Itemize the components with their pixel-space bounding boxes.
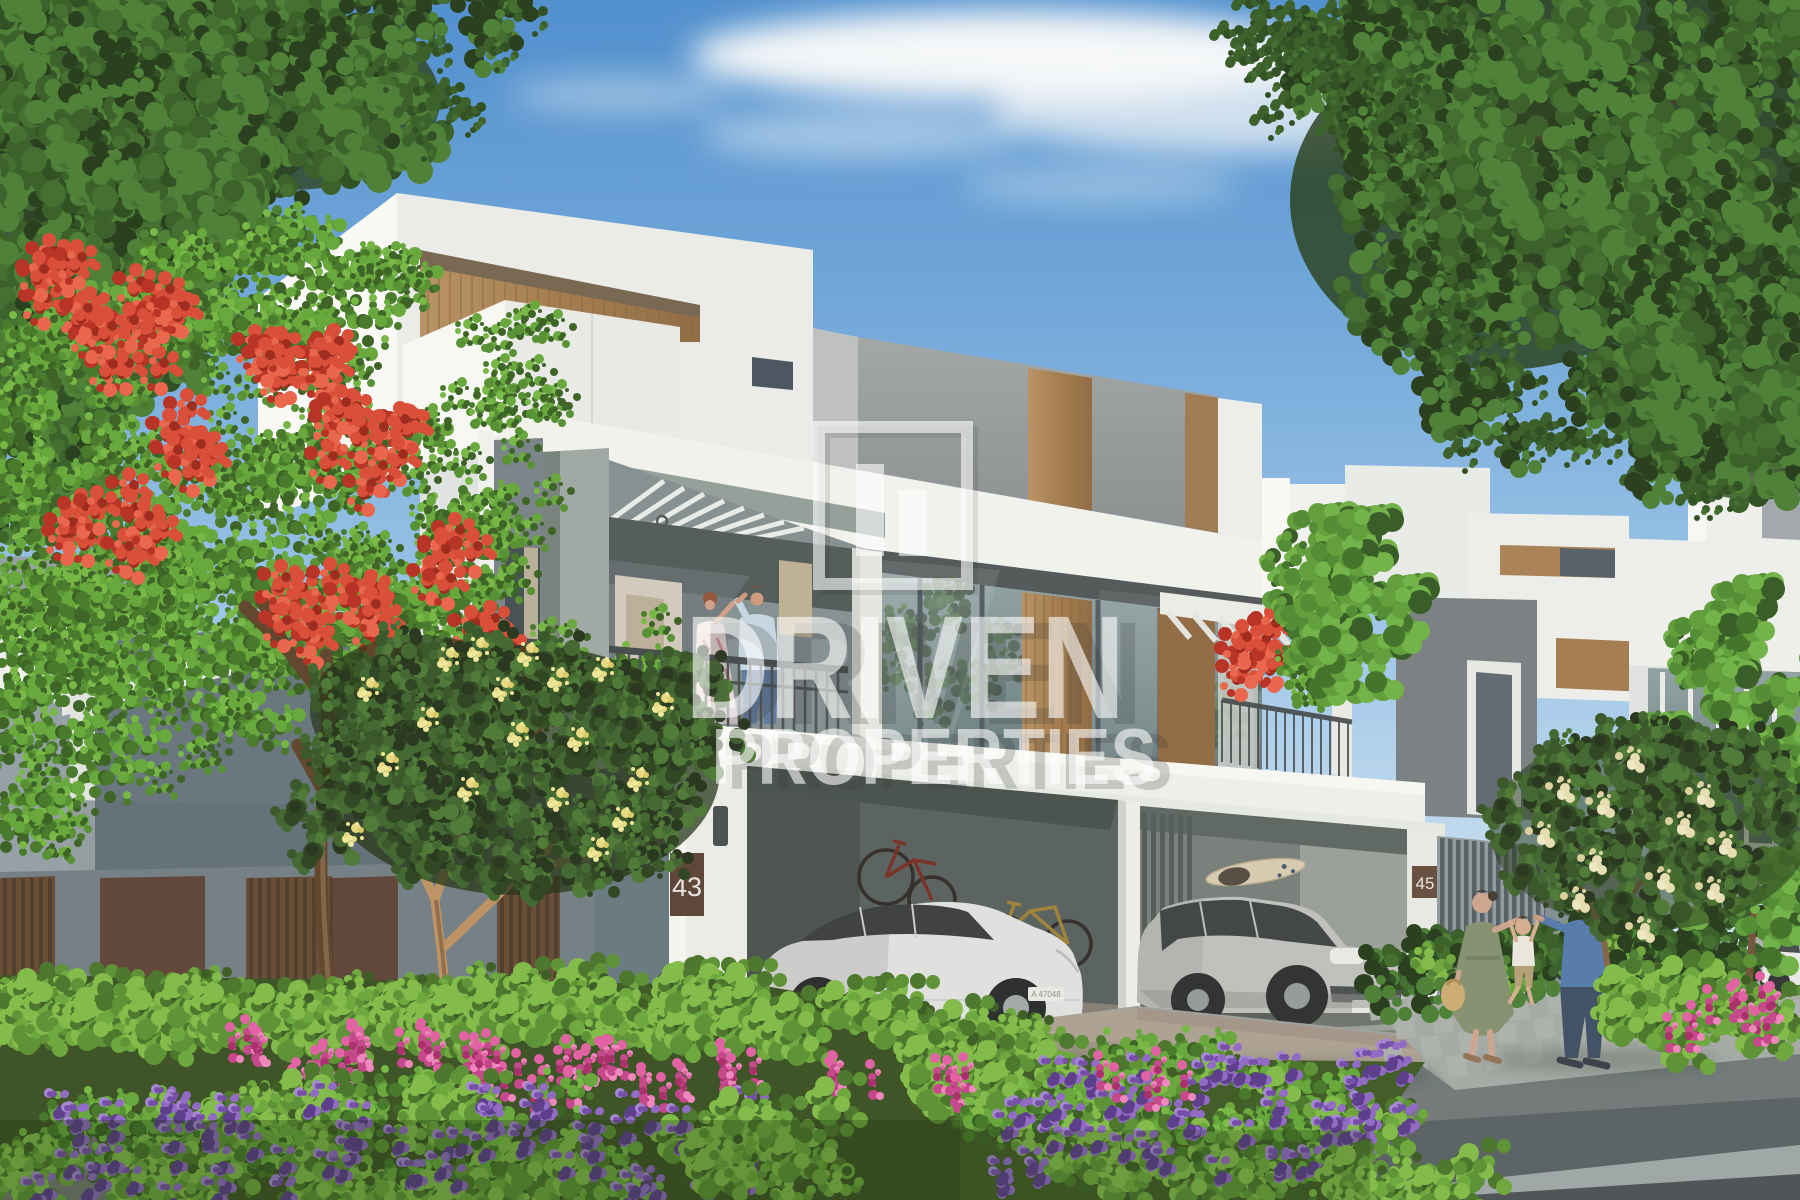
svg-text:PROPERTIES: PROPERTIES — [712, 712, 1157, 801]
